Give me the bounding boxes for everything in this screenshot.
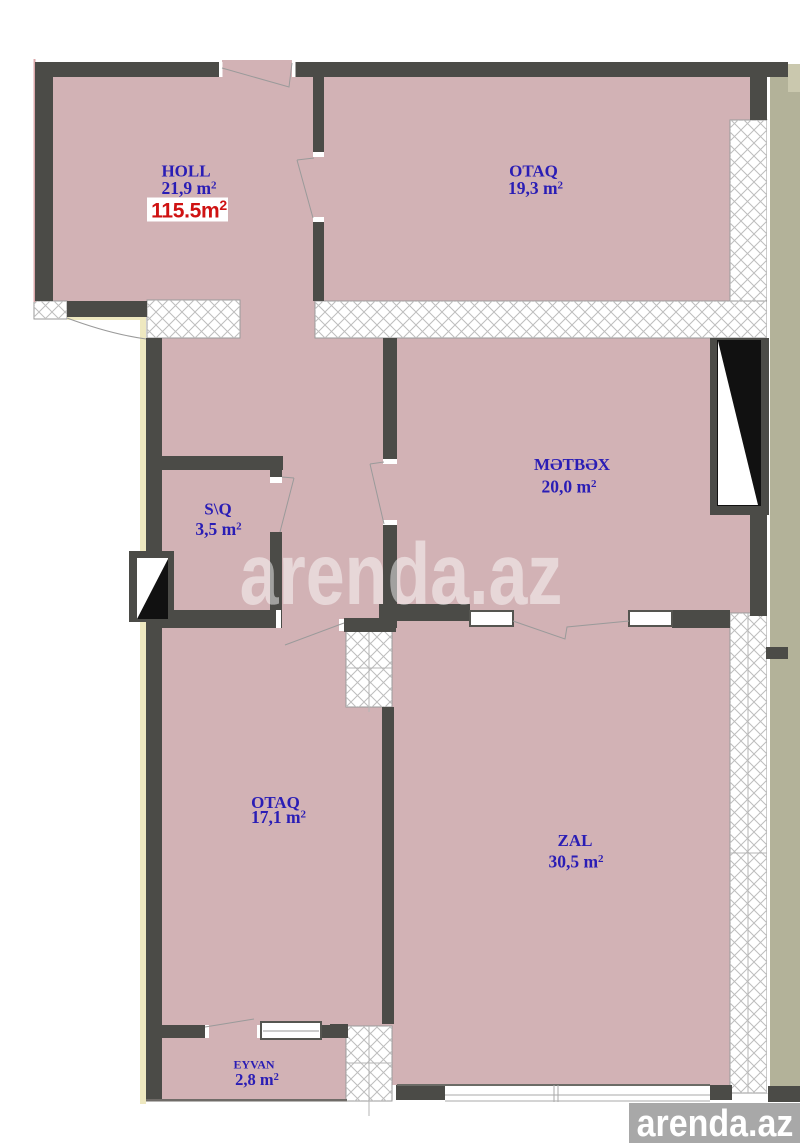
svg-text:19,3 m2: 19,3 m2 [508, 178, 564, 198]
svg-text:S\Q: S\Q [204, 500, 231, 519]
svg-text:ZAL: ZAL [558, 831, 593, 850]
svg-text:MƏTBƏX: MƏTBƏX [534, 455, 611, 474]
svg-text:115.5m2: 115.5m2 [151, 197, 227, 223]
svg-text:21,9 m2: 21,9 m2 [161, 178, 217, 198]
svg-text:30,5 m2: 30,5 m2 [548, 852, 604, 872]
svg-text:arenda.az: arenda.az [240, 526, 563, 623]
svg-text:3,5 m2: 3,5 m2 [195, 519, 242, 539]
svg-text:2,8 m2: 2,8 m2 [235, 1070, 279, 1089]
svg-text:20,0 m2: 20,0 m2 [541, 477, 597, 497]
svg-text:arenda.az: arenda.az [637, 1101, 794, 1143]
svg-text:17,1 m2: 17,1 m2 [251, 807, 307, 827]
